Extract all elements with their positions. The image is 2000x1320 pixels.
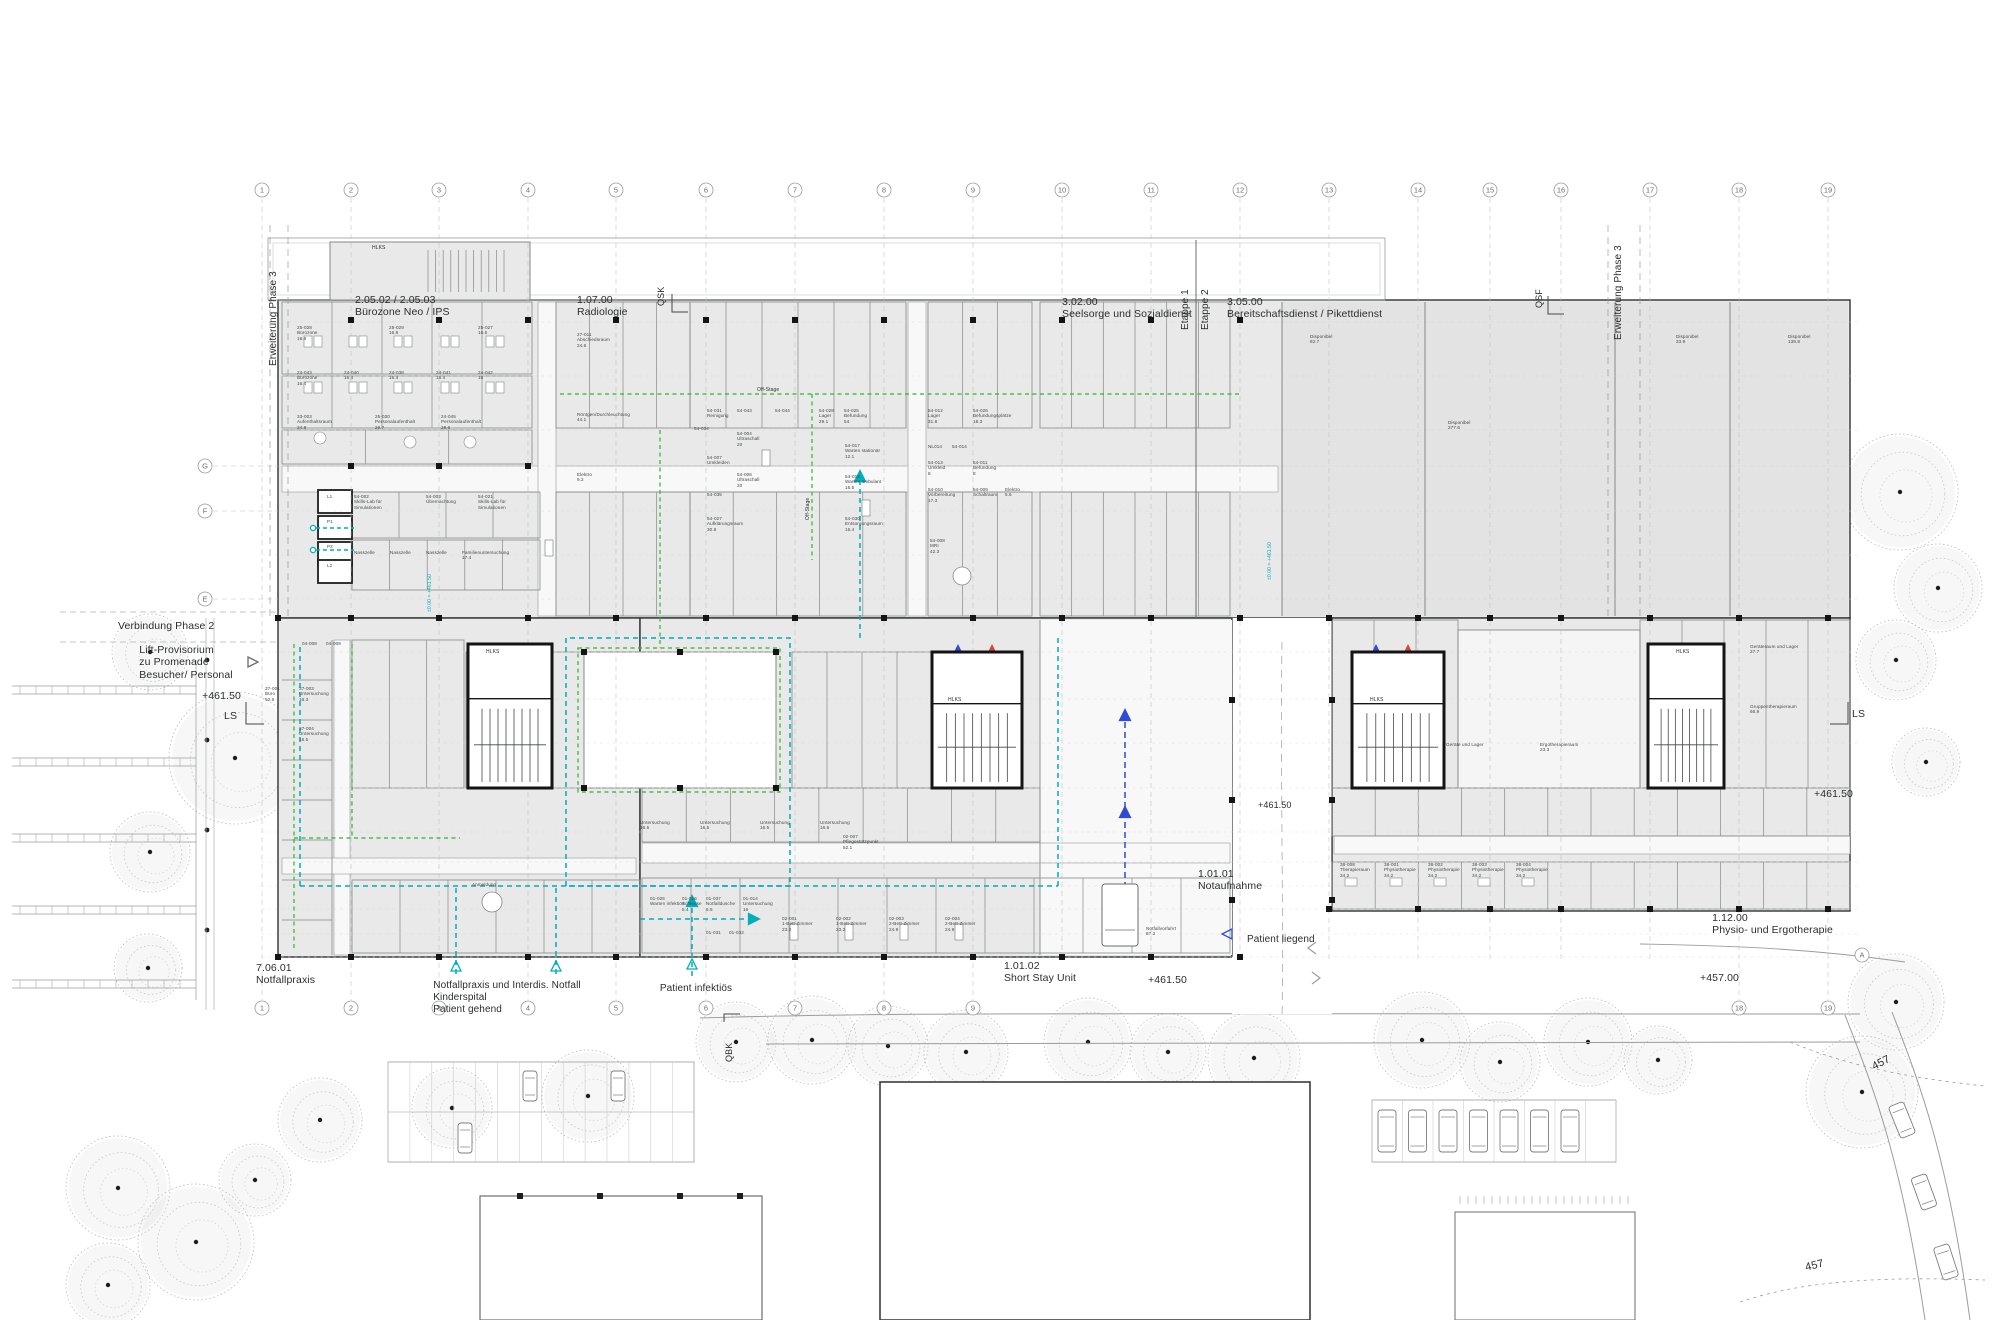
grid-column-19: 19 <box>1821 183 1835 197</box>
grid-column-bottom-8: 8 <box>877 1001 891 1015</box>
svg-text:3: 3 <box>437 186 441 195</box>
grid-column-9: 9 <box>966 183 980 197</box>
tree <box>114 934 182 1002</box>
svg-text:16: 16 <box>1557 186 1565 195</box>
grid-column-bottom-9: 9 <box>966 1001 980 1015</box>
grid-column-12: 12 <box>1233 183 1247 197</box>
floor-plan-canvas: 1234567891011121314151617181912345678918… <box>0 0 2000 1320</box>
grid-column-bottom-2: 2 <box>344 1001 358 1015</box>
grid-column-bottom-19: 19 <box>1821 1001 1835 1015</box>
parked-car <box>1911 1173 1938 1210</box>
grid-column-10: 10 <box>1055 183 1069 197</box>
grid-column-bottom-5: 5 <box>609 1001 623 1015</box>
svg-text:9: 9 <box>971 1004 975 1013</box>
grid-column-15: 15 <box>1483 183 1497 197</box>
svg-text:8: 8 <box>882 1004 886 1013</box>
parked-car <box>1470 1110 1488 1152</box>
tree <box>768 996 856 1084</box>
svg-text:G: G <box>202 462 208 471</box>
grid-column-16: 16 <box>1554 183 1568 197</box>
svg-text:1: 1 <box>260 186 264 195</box>
parked-car <box>611 1071 625 1101</box>
tree <box>1460 1022 1540 1102</box>
svg-text:4: 4 <box>526 186 530 195</box>
svg-text:10: 10 <box>1058 186 1066 195</box>
tree <box>112 614 188 690</box>
grid-row-right-A: A <box>1855 948 1869 962</box>
grid-column-1: 1 <box>255 183 269 197</box>
grid-column-6: 6 <box>699 183 713 197</box>
svg-text:18: 18 <box>1735 186 1743 195</box>
grid-column-4: 4 <box>521 183 535 197</box>
svg-text:19: 19 <box>1824 1004 1832 1013</box>
svg-text:14: 14 <box>1414 186 1422 195</box>
grid-column-bottom-7: 7 <box>788 1001 802 1015</box>
parked-car <box>1378 1110 1396 1152</box>
tree <box>1842 434 1958 550</box>
svg-text:8: 8 <box>882 186 886 195</box>
ambulance <box>1102 884 1138 946</box>
tree <box>1894 544 1982 632</box>
svg-text:2: 2 <box>349 186 353 195</box>
svg-text:9: 9 <box>971 186 975 195</box>
grid-column-bottom-6: 6 <box>699 1001 713 1015</box>
parked-car <box>1531 1110 1549 1152</box>
tree <box>1130 1014 1206 1090</box>
grid-column-5: 5 <box>609 183 623 197</box>
svg-text:12: 12 <box>1236 186 1244 195</box>
svg-text:15: 15 <box>1486 186 1494 195</box>
grid-column-3: 3 <box>432 183 446 197</box>
tree <box>1856 620 1936 700</box>
grid-column-bottom-18: 18 <box>1732 1001 1746 1015</box>
svg-text:2: 2 <box>349 1004 353 1013</box>
svg-text:11: 11 <box>1147 186 1155 195</box>
svg-text:18: 18 <box>1735 1004 1743 1013</box>
tree <box>1624 1026 1692 1094</box>
svg-text:13: 13 <box>1325 186 1333 195</box>
svg-text:A: A <box>1859 951 1864 960</box>
svg-text:17: 17 <box>1646 186 1654 195</box>
parked-car <box>1933 1243 1959 1280</box>
svg-text:7: 7 <box>793 1004 797 1013</box>
svg-text:E: E <box>202 595 207 604</box>
svg-text:F: F <box>203 507 208 516</box>
grid-column-2: 2 <box>344 183 358 197</box>
tree <box>1374 992 1470 1088</box>
svg-text:5: 5 <box>614 1004 618 1013</box>
grid-column-18: 18 <box>1732 183 1746 197</box>
svg-text:4: 4 <box>526 1004 530 1013</box>
grid-row-F: F <box>198 504 212 518</box>
grid-column-bottom-4: 4 <box>521 1001 535 1015</box>
tree <box>219 1144 291 1216</box>
parked-car <box>1561 1110 1579 1152</box>
svg-text:3: 3 <box>437 1004 441 1013</box>
svg-text:7: 7 <box>793 186 797 195</box>
grid-row-E: E <box>198 592 212 606</box>
parked-car <box>1500 1110 1518 1152</box>
grid-column-17: 17 <box>1643 183 1657 197</box>
grid-column-11: 11 <box>1144 183 1158 197</box>
grid-row-G: G <box>198 459 212 473</box>
grid-column-8: 8 <box>877 183 891 197</box>
parked-car <box>458 1123 472 1153</box>
svg-text:6: 6 <box>704 1004 708 1013</box>
tree <box>848 1006 928 1086</box>
parked-car <box>1409 1110 1427 1152</box>
parked-car <box>1439 1110 1457 1152</box>
grid-column-13: 13 <box>1322 183 1336 197</box>
tree <box>278 1078 362 1162</box>
grid-column-bottom-3: 3 <box>432 1001 446 1015</box>
tree <box>66 1243 150 1320</box>
grid-column-7: 7 <box>788 183 802 197</box>
svg-text:6: 6 <box>704 186 708 195</box>
tree <box>1892 728 1960 796</box>
parked-car <box>523 1071 537 1101</box>
svg-text:1: 1 <box>260 1004 264 1013</box>
tree <box>1848 954 1944 1050</box>
svg-text:5: 5 <box>614 186 618 195</box>
svg-text:19: 19 <box>1824 186 1832 195</box>
tree <box>1044 998 1132 1086</box>
grid-column-14: 14 <box>1411 183 1425 197</box>
floor-plan-drawing: 1234567891011121314151617181912345678918… <box>0 0 2000 1320</box>
tree <box>110 812 190 892</box>
grid-column-bottom-1: 1 <box>255 1001 269 1015</box>
tree <box>412 1068 492 1148</box>
